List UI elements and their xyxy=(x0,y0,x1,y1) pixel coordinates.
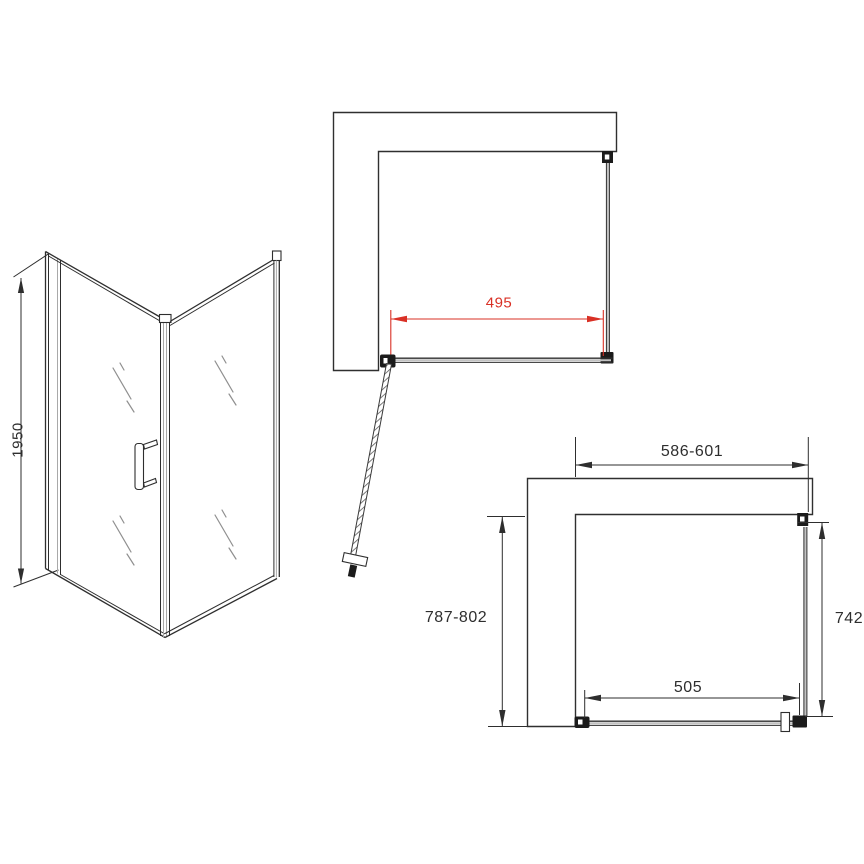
open-door-handle xyxy=(342,553,367,578)
brick-wall xyxy=(334,113,617,371)
overall-width-dimension: 586-601 xyxy=(576,437,809,512)
door-handle xyxy=(135,440,158,490)
dimension-label-side-panel: 742 xyxy=(835,610,863,627)
drawing-canvas: 1950 xyxy=(0,0,864,864)
reflection-mark xyxy=(215,510,236,559)
overall-depth-dimension: 787-802 xyxy=(425,517,527,727)
perspective-view: 1950 xyxy=(10,251,282,638)
panel-clamp xyxy=(781,713,790,732)
dimension-label-door-width: 495 xyxy=(486,295,513,312)
dimension-label-overall-depth: 787-802 xyxy=(425,609,487,626)
brick-wall xyxy=(528,479,813,727)
fixed-panel xyxy=(384,358,613,362)
open-door xyxy=(342,364,391,578)
reflection-mark xyxy=(113,363,134,412)
corner-bracket xyxy=(793,716,808,728)
fixed-panel-dimension: 505 xyxy=(585,679,800,718)
corner-post xyxy=(160,315,172,638)
height-dimension: 1950 xyxy=(10,254,59,588)
side-panel xyxy=(165,251,281,638)
side-glass-panel xyxy=(797,513,808,716)
reflection-mark xyxy=(113,516,134,565)
glass-reflection-marks xyxy=(113,356,236,565)
door-width-dimension: 495 xyxy=(391,295,604,357)
dimension-label-height: 1950 xyxy=(10,422,27,457)
side-panel-dimension: 742 xyxy=(798,523,863,717)
shower-enclosure-technical-drawing: 1950 xyxy=(0,0,864,864)
side-glass-panel xyxy=(601,151,614,364)
fixed-panel xyxy=(575,713,808,732)
door-open-plan-view: 495 xyxy=(334,113,617,578)
installation-plan-view: 586-601 787-802 742 505 xyxy=(425,437,863,732)
dimension-label-fixed-panel: 505 xyxy=(674,679,702,696)
dimension-label-overall-width: 586-601 xyxy=(661,443,723,460)
reflection-mark xyxy=(215,356,236,405)
